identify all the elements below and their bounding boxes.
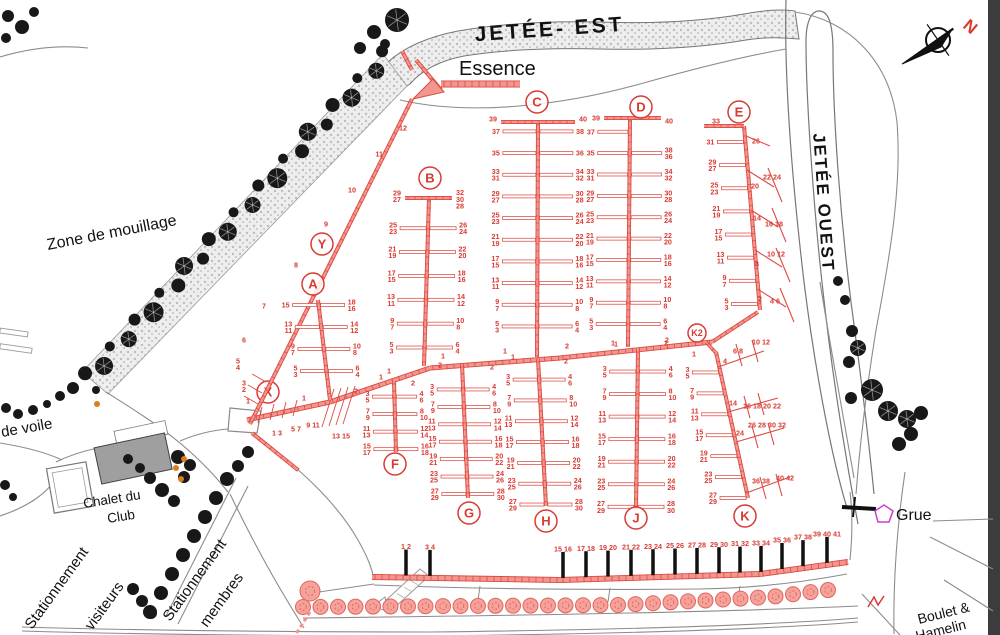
pink-tree-icon xyxy=(558,598,573,613)
dock-letter-text: E xyxy=(735,105,744,120)
tree-canopy xyxy=(29,7,39,17)
berth-finger xyxy=(439,440,463,443)
jetee-ouest-label: JETÉE OUEST xyxy=(809,133,838,273)
tree-icon xyxy=(343,89,361,107)
pink-tree-icon xyxy=(593,598,608,613)
pink-tree-icon xyxy=(611,598,626,613)
berth-number: 2 xyxy=(411,379,415,388)
berth-number: 1113 xyxy=(504,414,512,430)
berth-finger xyxy=(539,303,572,306)
berth-number: 108 xyxy=(456,316,464,332)
berth-finger xyxy=(441,475,465,478)
pink-tree-canopy xyxy=(611,598,626,613)
shoreline xyxy=(820,282,854,478)
berth-finger xyxy=(503,173,536,176)
tree-icon xyxy=(354,42,366,54)
berth-number: 810 xyxy=(668,386,676,402)
berth-number: 2523 xyxy=(710,181,718,197)
berth-finger xyxy=(465,388,489,391)
berth-finger xyxy=(301,370,325,373)
pink-tree-icon xyxy=(436,599,451,614)
tree-canopy xyxy=(1,403,11,413)
berth-number: 3432 xyxy=(576,167,584,183)
berth-finger xyxy=(519,482,543,485)
berth-number: 2927 xyxy=(393,188,401,204)
pink-tree-canopy xyxy=(558,598,573,613)
berth-number: 1816 xyxy=(575,254,583,270)
dock-letter-B: B xyxy=(419,167,441,189)
berth-number: 2729 xyxy=(509,497,517,513)
berth-finger xyxy=(721,187,747,190)
berth-number: 31 32 xyxy=(731,539,749,548)
pink-tree-icon xyxy=(576,598,591,613)
berth-number: 108 xyxy=(353,341,361,357)
berth-number: 1412 xyxy=(457,292,465,308)
berth-number: 1921 xyxy=(507,455,515,471)
berth-number: 36 38 xyxy=(752,477,770,486)
berth-finger xyxy=(515,420,539,423)
tick xyxy=(577,354,578,359)
tree-icon xyxy=(165,567,179,581)
berth-finger xyxy=(397,322,423,325)
berth-number: 2523 xyxy=(586,210,594,226)
berth-number: 33 xyxy=(712,117,720,126)
berth-number: 33 34 xyxy=(752,538,770,547)
grue-label: Grue xyxy=(896,507,932,524)
berth-number: 1113 xyxy=(598,409,606,425)
berth-number: 1311 xyxy=(491,276,499,292)
pink-tree-icon xyxy=(401,599,416,614)
tree-icon xyxy=(43,400,51,408)
berth-finger xyxy=(715,476,741,479)
tree-canopy xyxy=(202,232,216,246)
berth-finger xyxy=(542,399,566,402)
tree-canopy xyxy=(380,39,390,49)
berth-number: 1715 xyxy=(586,252,594,268)
berth-finger xyxy=(439,423,463,426)
berth-number: 1 xyxy=(302,394,306,403)
berth-finger xyxy=(429,274,455,277)
berth-finger xyxy=(520,503,544,506)
berth-finger xyxy=(400,227,426,230)
berth-finger xyxy=(638,483,664,486)
berth-number: 39 xyxy=(489,115,497,124)
line xyxy=(537,122,538,357)
berth-finger xyxy=(597,237,627,240)
dock-letter-C: C xyxy=(526,91,548,113)
slip-line xyxy=(252,374,266,382)
berth-finger xyxy=(723,210,749,213)
dock-letter-text: D xyxy=(636,100,645,115)
tree-canopy xyxy=(78,366,92,380)
berth-finger xyxy=(442,492,466,495)
pink-tree-canopy xyxy=(300,581,320,601)
berth-finger xyxy=(467,423,491,426)
berth-finger xyxy=(608,483,634,486)
berth-number: 97 xyxy=(589,295,593,311)
berth-number: 27 28 xyxy=(688,540,706,549)
tree-icon xyxy=(352,73,362,83)
berth-finger xyxy=(321,304,345,307)
tree-canopy xyxy=(127,583,139,595)
tree-canopy xyxy=(92,386,100,394)
pink-tree-canopy xyxy=(523,598,538,613)
pink-tree-canopy xyxy=(768,589,783,604)
tick xyxy=(688,342,689,347)
berth-number: 53 xyxy=(724,296,728,312)
pink-tree-icon xyxy=(541,598,556,613)
berth-number: 1618 xyxy=(668,432,676,448)
berth-number: 1816 xyxy=(348,297,356,313)
berth-finger xyxy=(397,413,417,416)
berth-finger xyxy=(293,304,317,307)
pink-tree-canopy xyxy=(681,594,696,609)
tree-icon xyxy=(198,510,212,524)
tree-icon xyxy=(202,232,216,246)
tick xyxy=(604,351,605,356)
berth-number: 2523 xyxy=(492,210,500,226)
tree-canopy xyxy=(242,446,254,458)
berth-number: 10 xyxy=(348,186,356,195)
slip-line xyxy=(336,387,348,425)
pink-tree-icon xyxy=(366,599,381,614)
jetee-ouest-outer xyxy=(786,0,847,508)
tree-canopy xyxy=(43,400,51,408)
berth-number: 108 xyxy=(575,297,583,313)
berth-number: 16 18 20 22 xyxy=(743,402,781,411)
tree-canopy xyxy=(354,42,366,54)
tree-canopy xyxy=(154,586,168,600)
berth-number: 26 xyxy=(752,137,760,146)
berth-finger xyxy=(597,280,627,283)
orange-marker xyxy=(173,465,179,471)
berth-number: 8 xyxy=(755,260,759,269)
berth-number: 108 xyxy=(663,295,671,311)
berth-number: 35 xyxy=(587,149,595,158)
dock-H: 3546798101113121415171618192120222325242… xyxy=(504,353,583,532)
tree-canopy xyxy=(229,207,239,217)
berth-number: 1 xyxy=(503,347,507,356)
tree-canopy xyxy=(168,495,180,507)
tree-icon xyxy=(385,8,409,32)
berth-number: 35 36 xyxy=(773,536,791,545)
pink-tree-canopy xyxy=(803,585,818,600)
berth-number: 32 xyxy=(242,378,246,394)
berth-number: 3836 xyxy=(665,146,673,162)
berth-number: 2 xyxy=(438,361,442,370)
berth-finger xyxy=(697,392,723,395)
shoreline xyxy=(933,519,993,521)
berth-finger xyxy=(638,505,664,508)
pink-tree-canopy xyxy=(401,599,416,614)
berth-number: 19 20 xyxy=(599,543,617,552)
berth-finger xyxy=(399,274,425,277)
pink-tree-icon xyxy=(506,598,521,613)
dock-letter-text: C xyxy=(532,95,542,110)
dock-letter-text: K2 xyxy=(691,328,703,338)
tick xyxy=(674,343,675,348)
berth-finger xyxy=(639,460,665,463)
pink-tree-canopy xyxy=(436,599,451,614)
tree-canopy xyxy=(144,472,156,484)
dock-C: 3940373835363331343229273028252326242119… xyxy=(489,91,587,357)
pink-tree-icon xyxy=(751,590,766,605)
pink-tree-canopy xyxy=(331,599,346,614)
tick xyxy=(646,346,647,351)
berth-number: 3331 xyxy=(492,167,500,183)
north-label: N xyxy=(959,16,981,38)
berth-number: 1412 xyxy=(575,276,583,292)
berth-number: 37 xyxy=(492,127,500,136)
tick xyxy=(611,350,612,355)
berth-finger xyxy=(539,260,572,263)
berth-number: 24 xyxy=(736,429,744,438)
zone-mouillage-label: Zone de mouillage xyxy=(46,212,179,254)
berth-number: 2624 xyxy=(576,210,584,226)
berth-number: 53 xyxy=(390,340,394,356)
berth-finger xyxy=(427,346,453,349)
tree-icon xyxy=(840,295,850,305)
tree-icon xyxy=(143,605,157,619)
tree-icon xyxy=(219,223,237,241)
shoreline xyxy=(230,494,304,628)
pink-tree-canopy xyxy=(348,599,363,614)
berth-number: 35 xyxy=(603,364,607,380)
berth-number: 23 24 xyxy=(644,542,662,551)
berth-finger xyxy=(630,323,660,326)
berth-number: 3028 xyxy=(664,188,672,204)
berth-number: 79 xyxy=(602,386,606,402)
shoreline xyxy=(22,618,858,632)
berth-number: 1517 xyxy=(695,428,703,444)
tree-icon xyxy=(154,288,164,298)
pink-tree-canopy xyxy=(698,593,713,608)
berth-finger xyxy=(725,233,751,236)
pink-tree-canopy xyxy=(821,583,836,598)
berth-number: 8 xyxy=(294,261,298,270)
berth-finger xyxy=(717,141,743,144)
berth-finger xyxy=(503,195,536,198)
dock-G: 3546798101113121415171618192120222325242… xyxy=(428,352,505,524)
berth-number: 35 xyxy=(430,382,434,398)
tree-canopy xyxy=(176,548,190,562)
tree-icon xyxy=(326,98,340,112)
pink-tree-icon xyxy=(523,598,538,613)
dock-letter-text: B xyxy=(425,171,434,186)
berth-number: 3028 xyxy=(576,189,584,205)
tree-icon xyxy=(209,491,223,505)
berth-finger xyxy=(502,238,535,241)
berth-finger xyxy=(540,173,573,176)
tree-icon xyxy=(898,410,916,428)
tree-canopy xyxy=(892,437,906,451)
berth-number: 1113 xyxy=(428,417,436,433)
dock-walk xyxy=(252,433,299,472)
berth-finger xyxy=(631,280,661,283)
berth-number: 39 40 41 xyxy=(813,529,841,538)
tree-canopy xyxy=(252,179,264,191)
berth-number: 6 8 xyxy=(733,347,743,356)
berth-number: 1715 xyxy=(714,227,722,243)
pink-tree-canopy xyxy=(786,587,801,602)
berth-number: 1517 xyxy=(598,432,606,448)
tree-canopy xyxy=(129,314,141,326)
berth-number: 1311 xyxy=(284,319,292,335)
pink-tree-canopy xyxy=(646,596,661,611)
tree-icon xyxy=(252,179,264,191)
berth-number: 53 xyxy=(294,363,298,379)
berth-number: 1 xyxy=(379,373,383,382)
pink-tree-icon xyxy=(471,598,486,613)
berth-number: 1715 xyxy=(491,254,499,270)
chalet-body xyxy=(94,433,172,484)
tree-icon xyxy=(232,460,244,472)
berth-number: 1816 xyxy=(458,268,466,284)
line xyxy=(430,358,560,368)
tree-icon xyxy=(187,529,201,543)
dock-letter-D: D xyxy=(630,96,652,118)
dock-K: 3579111315171921232527291K xyxy=(685,350,756,527)
berth-number: 1921 xyxy=(429,452,437,468)
tree-icon xyxy=(155,483,169,497)
berth-number: 810 xyxy=(569,393,577,409)
berth-number: 38 xyxy=(576,127,584,136)
dock-walk xyxy=(560,571,760,583)
berth-finger xyxy=(548,503,572,506)
pink-tree-icon xyxy=(786,587,801,602)
berth-number: 1412 xyxy=(664,274,672,290)
berth-number: 79 xyxy=(507,393,511,409)
berth-number: 35 xyxy=(685,365,689,381)
tree-canopy xyxy=(367,25,381,39)
tree-icon xyxy=(171,278,185,292)
red-squiggle xyxy=(868,596,884,607)
pink-tree-canopy xyxy=(751,590,766,605)
pink-tree-icon xyxy=(821,583,836,598)
berth-finger xyxy=(399,251,425,254)
pink-tree-canopy xyxy=(716,592,731,607)
berth-finger xyxy=(632,173,662,176)
berth-finger xyxy=(440,458,464,461)
berth-finger xyxy=(539,325,572,328)
tree-canopy xyxy=(321,118,333,130)
tree-icon xyxy=(861,379,883,401)
berth-finger xyxy=(502,325,535,328)
berth-number: 79 xyxy=(431,399,435,415)
berth-finger xyxy=(729,279,755,282)
berth-number: 2927 xyxy=(492,189,500,205)
pink-tree-canopy xyxy=(576,598,591,613)
dock-letter-text: K xyxy=(740,509,750,524)
berth-finger xyxy=(639,438,665,441)
berth-number: 97 xyxy=(291,341,295,357)
berth-number: 2830 xyxy=(575,497,583,513)
berth-finger xyxy=(468,458,492,461)
tree-icon xyxy=(368,63,384,79)
berth-finger xyxy=(540,217,573,220)
berth-number: 2 xyxy=(664,339,668,348)
berth-finger xyxy=(631,194,661,197)
berth-finger xyxy=(427,322,453,325)
berth-finger xyxy=(429,251,455,254)
tree-icon xyxy=(220,472,234,486)
shoreline xyxy=(258,436,374,580)
tree-canopy xyxy=(2,10,14,22)
grue-crane-icon xyxy=(842,497,876,517)
tick xyxy=(625,349,626,354)
tree-canopy xyxy=(904,427,918,441)
berth-number: 39 xyxy=(592,114,600,123)
berth-number: 4 xyxy=(723,357,727,366)
berth-finger xyxy=(467,440,491,443)
berth-finger xyxy=(397,346,423,349)
berth-number: 29 30 xyxy=(710,540,728,549)
tree-canopy xyxy=(135,463,145,473)
tree-canopy xyxy=(165,567,179,581)
tree-canopy xyxy=(846,325,858,337)
pink-tree-icon xyxy=(646,596,661,611)
berth-number: 323028 xyxy=(456,188,464,210)
tick xyxy=(570,354,571,359)
tree-canopy xyxy=(67,382,79,394)
tick xyxy=(618,349,619,354)
berth-finger xyxy=(630,301,660,304)
berth-number: 2 xyxy=(758,295,762,304)
tree-icon xyxy=(914,406,928,420)
berth-number: 1921 xyxy=(700,449,708,465)
berth-number: 13 15 xyxy=(332,432,350,441)
berth-number: 1715 xyxy=(388,268,396,284)
crane-beam xyxy=(842,507,876,509)
berth-number: 21 22 xyxy=(622,542,640,551)
berth-finger xyxy=(326,348,350,351)
berth-number: 1412 xyxy=(350,319,358,335)
tree-icon xyxy=(136,595,148,607)
dock-J: 3546798101113121415171618192120222325242… xyxy=(597,339,676,529)
berth-number: 54 xyxy=(236,356,240,372)
tree-canopy xyxy=(15,20,29,34)
berth-number: 2325 xyxy=(430,469,438,485)
tree-icon xyxy=(843,356,855,368)
tree-canopy xyxy=(136,595,148,607)
berth-number: 64 xyxy=(575,319,579,335)
berth-finger xyxy=(598,152,628,155)
pink-tree-canopy xyxy=(488,598,503,613)
berth-finger xyxy=(503,152,536,155)
berth-finger xyxy=(466,405,490,408)
berth-finger xyxy=(541,378,565,381)
berth-finger xyxy=(609,438,635,441)
berth-number: 40 42 xyxy=(776,474,794,483)
tree-icon xyxy=(121,331,137,347)
tree-icon xyxy=(846,325,858,337)
tree-canopy xyxy=(833,276,843,286)
berth-number: 53 xyxy=(495,319,499,335)
tree-icon xyxy=(904,427,918,441)
berth-number: 10 12 xyxy=(767,250,785,259)
berth-finger xyxy=(540,195,573,198)
chalet-label-line2: Club xyxy=(106,507,136,526)
shoreline xyxy=(930,537,993,569)
berth-finger xyxy=(502,282,535,285)
tree-icon xyxy=(878,401,898,421)
berth-number: 2022 xyxy=(668,454,676,470)
tick xyxy=(660,345,661,350)
berth-finger xyxy=(295,326,319,329)
berth-number: 1 2 xyxy=(401,542,411,551)
tree-icon xyxy=(135,463,145,473)
berth-finger xyxy=(731,302,757,305)
